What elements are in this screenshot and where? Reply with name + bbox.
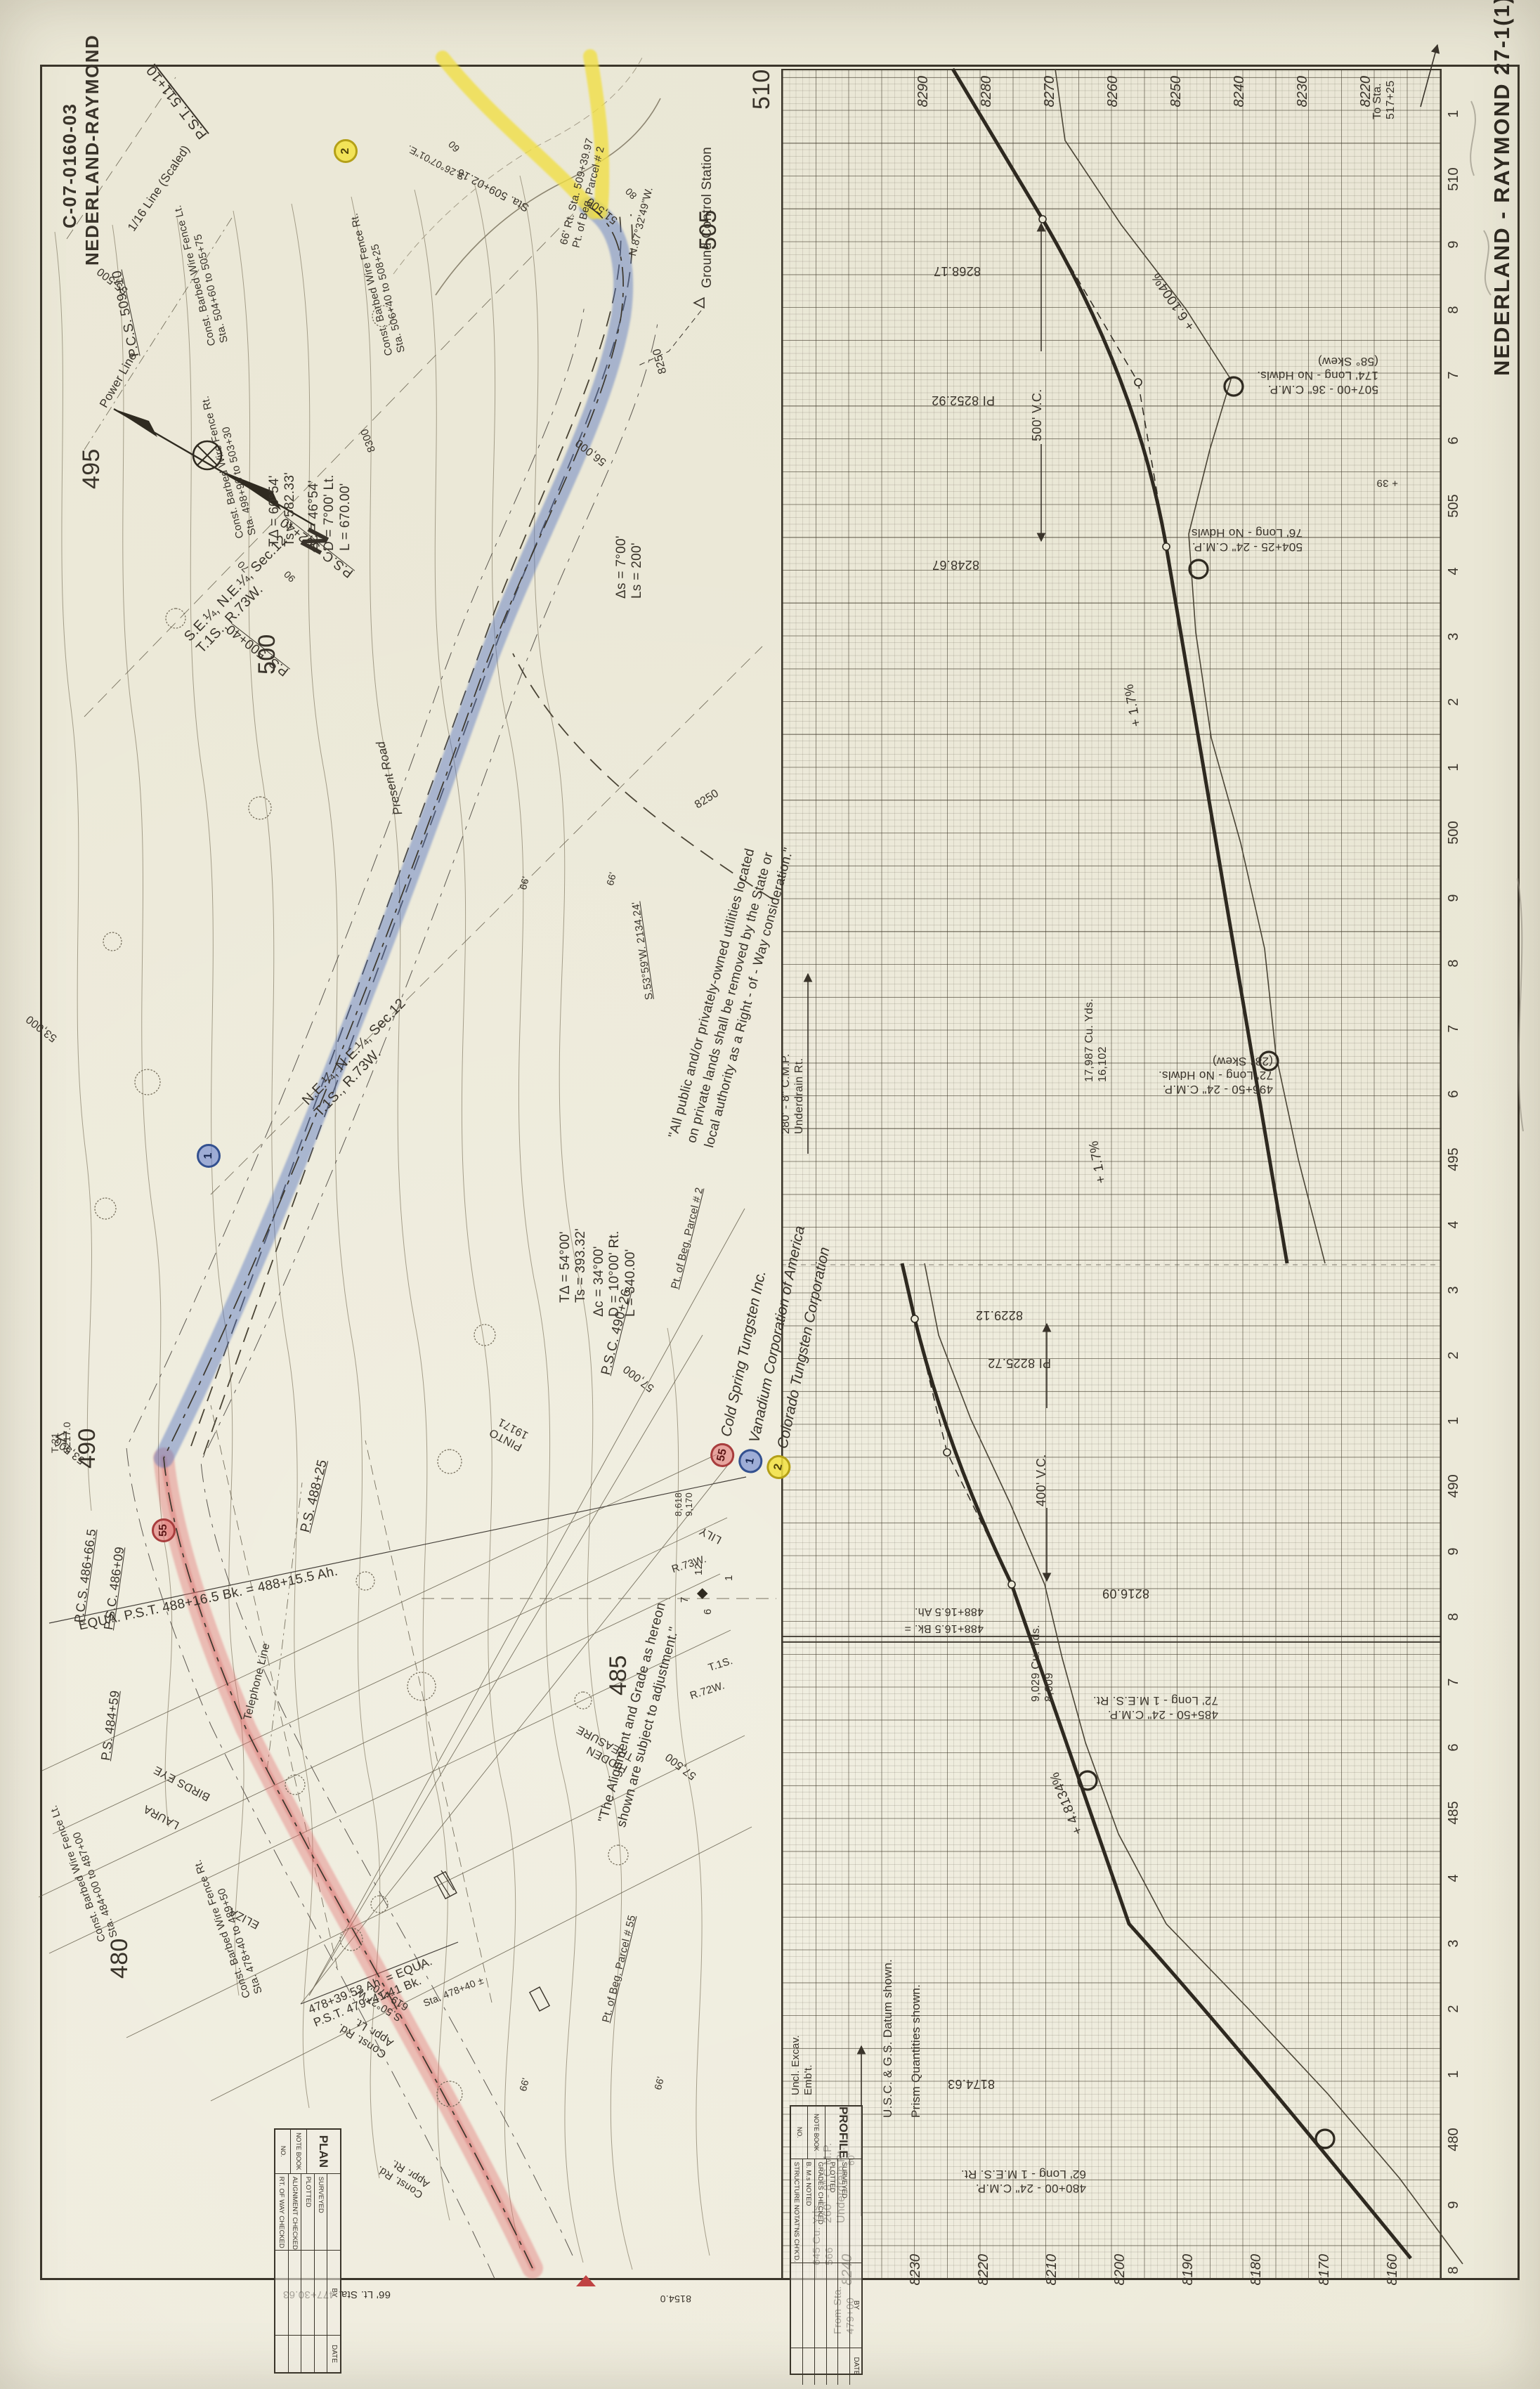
annotation: + 39 <box>1376 476 1398 489</box>
station-label: 2 <box>1446 1988 1462 2030</box>
elevation-label-left: 8210 <box>1044 2254 1060 2306</box>
station-label: 6 <box>1446 1726 1462 1769</box>
annotation: PI 8225.72 <box>988 1355 1051 1370</box>
profile-title-block: PROFILENOTE BOOKNO.BYDATESURVEYEDPLOTTED… <box>790 2105 863 2375</box>
annotation: 8154.0 <box>660 2293 691 2305</box>
station-label: 9 <box>1446 1530 1462 1573</box>
annotation: 1 <box>723 1575 736 1581</box>
annotation: 495 <box>77 448 105 489</box>
elevation-label-right: 8230 <box>1295 76 1311 128</box>
sheet-title: NEDERLAND - RAYMOND 27-1(1) 20 <box>1489 0 1515 376</box>
station-label: 9 <box>1446 877 1462 919</box>
title-block-row-label: ALIGNMENT CHECKED <box>289 2174 301 2251</box>
annotation: U.S.C. & G.S. Datum shown. <box>881 1959 895 2118</box>
annotation: T-21 8217.0 <box>49 1421 72 1453</box>
annotation: 500 <box>253 634 281 675</box>
plan-profile-sheet: C-07-0160-03NEDERLAND-RAYMONDP.S.T. 511+… <box>0 0 1540 2389</box>
elevation-label-right: 8220 <box>1358 76 1374 128</box>
elevation-label-left: 8230 <box>908 2254 924 2306</box>
station-label: 490 <box>1446 1465 1462 1507</box>
annotation: TΔ = 54°00' Ts = 393.32' <box>558 1228 589 1303</box>
annotation: 496+50 - 24" C.M.P. 72' Long - No Hdwls.… <box>1159 1054 1273 1096</box>
title-block-row-label: SURVEYED <box>315 2174 327 2251</box>
station-label: 4 <box>1446 1857 1462 1899</box>
station-label: 8 <box>1446 289 1462 331</box>
annotation: 480 <box>105 1938 133 1979</box>
annotation: 8,618 9,170 <box>673 1492 695 1516</box>
annotation: Prism Quantities shown. <box>909 1984 923 2118</box>
title-block-no-label: NO. <box>791 2107 807 2159</box>
title-block-no-label: NO. <box>275 2130 290 2173</box>
title-block-name: PLAN <box>306 2130 340 2173</box>
station-label: 7 <box>1446 1008 1462 1050</box>
annotation: 480+00 - 24" C.M.P. 62' Long - 1 M.E.S. … <box>961 2167 1086 2195</box>
parcel-number-circle: 1 <box>197 1144 221 1168</box>
station-label: 2 <box>1446 681 1462 723</box>
annotation: 485 <box>604 1655 632 1695</box>
annotation: 7 <box>679 1596 691 1603</box>
annotation: 510 <box>748 69 776 110</box>
annotation: 9,029 Cu. Yds. 8,009 <box>1030 1625 1057 1702</box>
title-block-row-label: PLOTTED <box>301 2174 314 2251</box>
title-block-name: PROFILE <box>825 2107 861 2159</box>
station-label: 9 <box>1446 223 1462 266</box>
station-label: 4 <box>1446 550 1462 592</box>
annotation: 8229.12 <box>976 1308 1023 1322</box>
title-block-notebook-label: NOTE BOOK <box>290 2130 306 2173</box>
station-label: 485 <box>1446 1792 1462 1834</box>
annotation: C-07-0160-03 <box>59 103 81 228</box>
culvert-symbols <box>1078 377 1334 2148</box>
parcel-number-circle: 2 <box>334 139 358 163</box>
station-label: 8 <box>1446 942 1462 984</box>
annotation: Uncl. Excav. Emb't. <box>790 2035 814 2095</box>
title-block-row-label: SURVEYED <box>838 2159 849 2263</box>
annotation: NEDERLAND-RAYMOND <box>81 34 103 266</box>
annotation: Δs = 7°00' Ls = 200' <box>614 535 646 599</box>
annotation: 490 <box>73 1428 101 1469</box>
station-label: 500 <box>1446 812 1462 854</box>
title-block-row-label: RT. OF WAY CHECKED <box>275 2174 288 2251</box>
station-label: 8 <box>1446 2249 1462 2291</box>
title-block-row-label: GRADES CHECKED <box>815 2159 826 2263</box>
station-label: 9 <box>1446 2184 1462 2226</box>
title-block-by-header: BY <box>850 2263 861 2348</box>
annotation: 8174.63 <box>948 2076 995 2091</box>
station-label: 1 <box>1446 2053 1462 2095</box>
annotation: PI 8252.92 <box>932 393 995 408</box>
annotation: 6 <box>702 1608 714 1615</box>
plan-title-block: PLANNOTE BOOKNO.BYDATESURVEYEDPLOTTEDALI… <box>274 2128 341 2374</box>
annotation: 8248.67 <box>932 557 979 572</box>
annotation: 485+50 - 24" C.M.P. 72' Long - 1 M.E.S. … <box>1093 1693 1218 1721</box>
station-label: 8 <box>1446 1596 1462 1638</box>
ground-line <box>925 69 1463 2264</box>
elevation-label-left: 8180 <box>1248 2254 1265 2306</box>
annotation: 17,987 Cu. Yds. 16,102 <box>1083 998 1110 1082</box>
elevation-label-left: 8200 <box>1112 2254 1128 2306</box>
station-label: 4 <box>1446 1204 1462 1246</box>
annotation: 504+25 - 24" C.M.P. 76' Long - No Hdwls. <box>1188 526 1303 554</box>
station-label: 3 <box>1446 1269 1462 1311</box>
station-label: 1 <box>1446 746 1462 788</box>
annotation: 500' V.C. <box>1030 389 1045 441</box>
annotation: 400' V.C. <box>1034 1454 1049 1506</box>
title-block-by-header: BY <box>327 2251 340 2336</box>
scanned-sheet-viewport: C-07-0160-03NEDERLAND-RAYMONDP.S.T. 511+… <box>0 0 1540 2389</box>
annotation: 8216.09 <box>1102 1586 1149 1601</box>
elevation-label-right: 8270 <box>1042 76 1058 128</box>
annotation: 505 <box>694 209 722 250</box>
elevation-label-right: 8280 <box>979 76 995 128</box>
annotation: 507+00 - 36" C.M.P. 174' Long - No Hdwls… <box>1257 354 1378 396</box>
annotation: 488+16.5 Bk. = <box>904 1621 984 1634</box>
title-block-row-label: B. M.s NOTED <box>803 2159 814 2263</box>
elevation-label-right: 8260 <box>1105 76 1121 128</box>
station-label: 495 <box>1446 1138 1462 1180</box>
annotation: 12 <box>693 1563 705 1575</box>
elevation-label-left: 8160 <box>1385 2254 1401 2306</box>
station-label: 505 <box>1446 485 1462 527</box>
legend-parcel-circle: 1 <box>736 1447 764 1475</box>
station-label: 480 <box>1446 2118 1462 2161</box>
parcel-number-circle: 55 <box>152 1518 176 1542</box>
elevation-label-right: 8250 <box>1168 76 1185 128</box>
title-block-row-label: STRUCTURE NOTAT'NS CH'K'D. <box>791 2159 802 2263</box>
elevation-label-left: 8170 <box>1317 2254 1333 2306</box>
elevation-label-left: 8190 <box>1180 2254 1196 2306</box>
station-label: 2 <box>1446 1334 1462 1376</box>
station-label: 1 <box>1446 93 1462 135</box>
annotation: 488+16.5 Ah. <box>915 1604 984 1617</box>
station-label: 3 <box>1446 1922 1462 1965</box>
station-label: 1 <box>1446 1400 1462 1442</box>
annotation: 8268.17 <box>934 263 981 278</box>
station-label: 510 <box>1446 158 1462 200</box>
station-label: 7 <box>1446 1661 1462 1703</box>
annotation: To Sta. 517+25 <box>1371 80 1398 119</box>
title-block-notebook-label: NOTE BOOK <box>807 2107 824 2159</box>
station-label: 7 <box>1446 354 1462 396</box>
legend-parcel-circle: 2 <box>764 1453 792 1481</box>
elevation-label-right: 8290 <box>915 76 932 128</box>
station-label: 6 <box>1446 419 1462 462</box>
title-block-date-header: DATE <box>327 2336 340 2372</box>
title-block-row-label: PLOTTED <box>827 2159 838 2263</box>
station-label: 3 <box>1446 616 1462 658</box>
annotation: 280' - 8" C.M.P. Underdrain Rt. <box>780 1053 807 1134</box>
legend-parcel-circle: 55 <box>708 1441 736 1469</box>
elevation-label-left: 8220 <box>976 2254 992 2306</box>
title-block-date-header: DATE <box>850 2348 861 2385</box>
station-label: 6 <box>1446 1073 1462 1115</box>
elevation-label-right: 8240 <box>1232 76 1248 128</box>
